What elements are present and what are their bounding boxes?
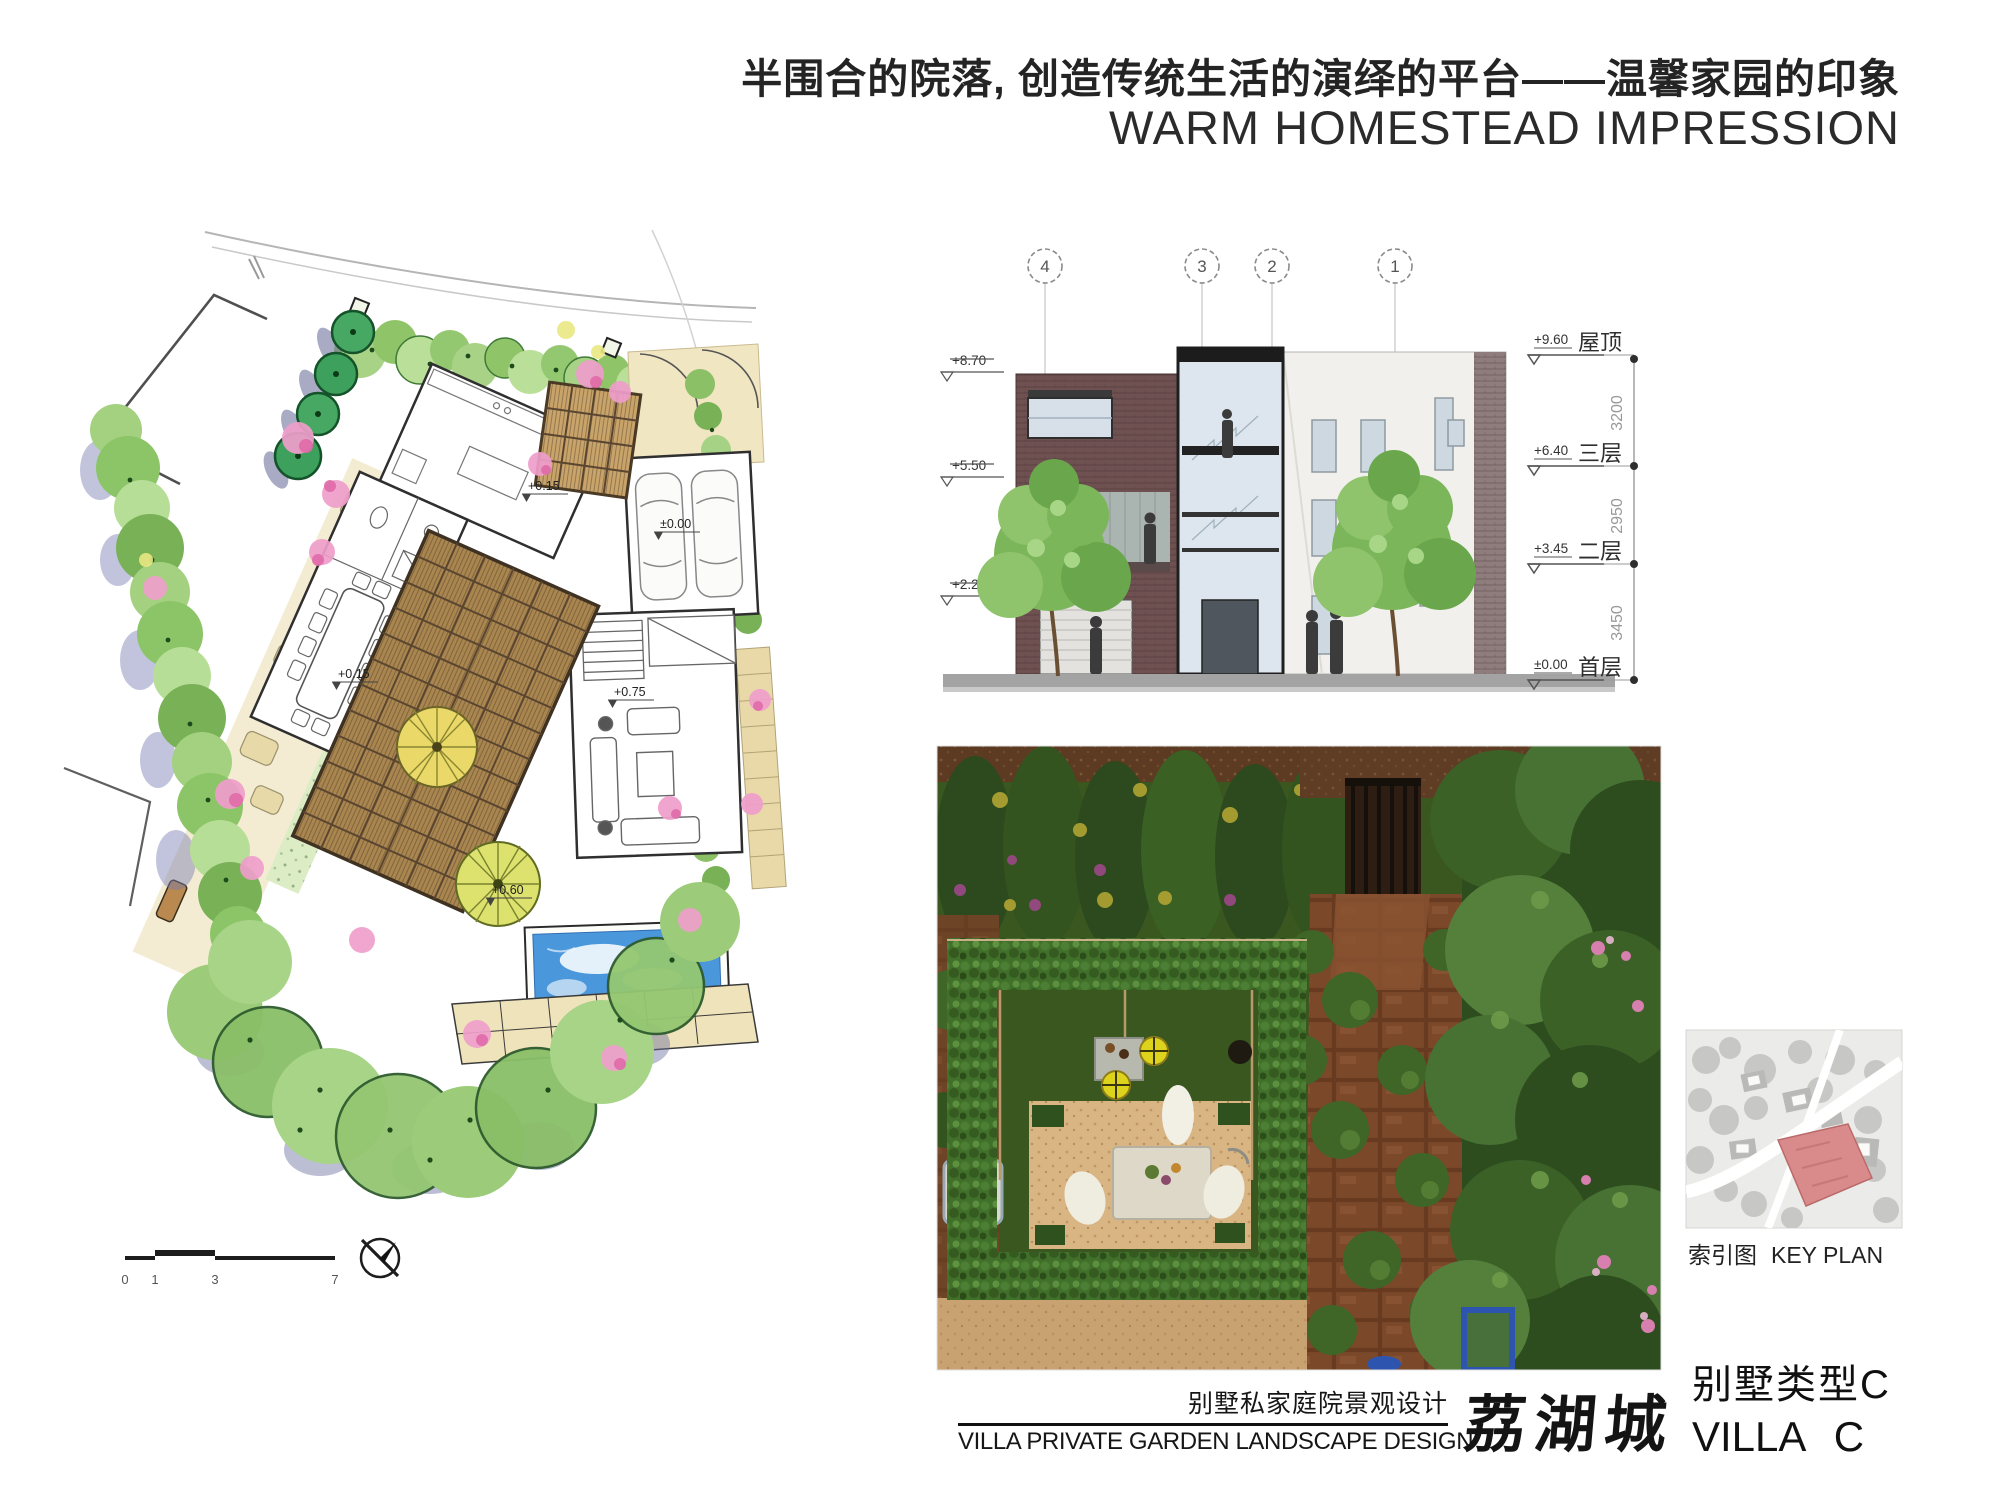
svg-text:+3.45: +3.45 — [1534, 541, 1568, 556]
svg-text:三层: 三层 — [1578, 441, 1622, 466]
footer-rule — [958, 1423, 1448, 1426]
keyplan-caption-cn: 索引图 — [1688, 1242, 1757, 1268]
svg-text:首层: 首层 — [1578, 655, 1622, 680]
svg-text:+0.75: +0.75 — [614, 685, 646, 699]
svg-text:4: 4 — [1040, 257, 1049, 276]
svg-text:±0.00: ±0.00 — [1534, 657, 1568, 672]
svg-text:二层: 二层 — [1578, 539, 1622, 564]
project-subtitle-en: VILLA PRIVATE GARDEN LANDSCAPE DESIGN — [958, 1428, 1448, 1456]
svg-text:2950: 2950 — [1609, 498, 1626, 534]
project-logo: 荔湖城 — [1448, 1374, 1692, 1464]
svg-text:±0.00: ±0.00 — [660, 517, 691, 531]
svg-text:+6.40: +6.40 — [1534, 443, 1568, 458]
svg-text:+0.15: +0.15 — [338, 667, 370, 681]
svg-text:3: 3 — [1197, 257, 1206, 276]
svg-text:3: 3 — [211, 1272, 218, 1287]
keyplan-caption: 索引图KEY PLAN — [1688, 1236, 1883, 1270]
keyplan-caption-en: KEY PLAN — [1771, 1242, 1883, 1268]
svg-text:2: 2 — [1267, 257, 1276, 276]
elevation-ground — [943, 674, 1615, 692]
svg-text:1: 1 — [151, 1272, 158, 1287]
presentation-board: 半围合的院落, 创造传统生活的演绎的平台——温馨家园的印象 WARM HOMES… — [0, 0, 2000, 1500]
svg-text:+0.15: +0.15 — [528, 479, 560, 493]
svg-text:+2.2: +2.2 — [952, 577, 979, 592]
west-border — [80, 404, 266, 962]
svg-text:+5.50: +5.50 — [952, 458, 986, 473]
gravel-strip-texture — [937, 1298, 1307, 1370]
project-subtitle-cn: 别墅私家庭院景观设计 — [958, 1384, 1448, 1420]
north-hedge — [334, 298, 654, 403]
garden-photo — [924, 725, 1710, 1405]
elevation-right-markers: +9.60 +6.40 +3.45 ±0.00 屋顶 三层 二层 首层 — [1528, 330, 1638, 689]
site-plan: +0.15 ±0.00 +0.15 +0.75 — [64, 230, 786, 1287]
scale-bar: 0 1 3 7 — [121, 1250, 338, 1287]
right-hedge — [1410, 725, 1710, 1405]
svg-text:+8.70: +8.70 — [952, 353, 986, 368]
north-arrow-icon — [361, 1239, 399, 1277]
svg-text:3450: 3450 — [1609, 605, 1626, 641]
villa-type: 别墅类型C VILLA C — [1692, 1352, 1891, 1461]
garage — [624, 452, 758, 620]
svg-text:0: 0 — [121, 1272, 128, 1287]
villa-type-cn: 别墅类型C — [1692, 1352, 1891, 1410]
keyplan-map — [1686, 1030, 1902, 1229]
living-wing — [569, 609, 742, 858]
svg-text:7: 7 — [331, 1272, 338, 1287]
svg-text:屋顶: 屋顶 — [1578, 330, 1622, 355]
elevation-drawing: 4 3 2 1 +8.70 +5.50 +2.2 — [941, 249, 1638, 692]
project-subtitle: 别墅私家庭院景观设计 VILLA PRIVATE GARDEN LANDSCAP… — [958, 1384, 1448, 1456]
svg-text:+9.60: +9.60 — [1534, 332, 1568, 347]
svg-text:3200: 3200 — [1609, 395, 1626, 431]
villa-type-en: VILLA C — [1692, 1413, 1891, 1461]
svg-text:1: 1 — [1390, 257, 1399, 276]
svg-text:+0.60: +0.60 — [492, 883, 524, 897]
board-graphics: +0.15 ±0.00 +0.15 +0.75 — [0, 0, 2000, 1500]
